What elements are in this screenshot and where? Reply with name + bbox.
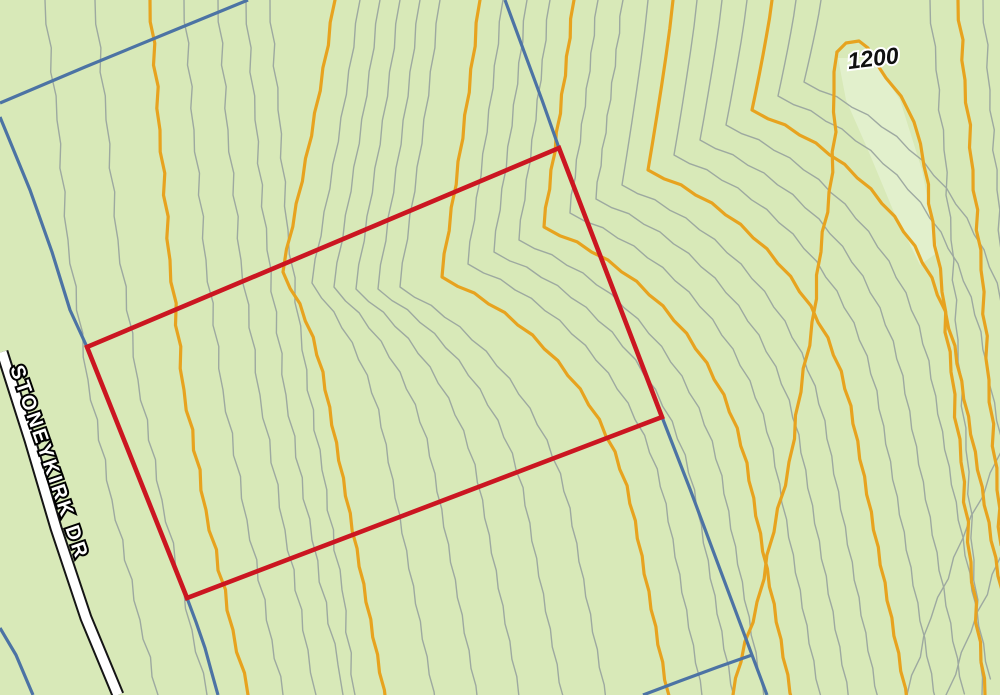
map-viewport[interactable]: STONEYKIRK DR 1200 <box>0 0 1000 695</box>
map-canvas[interactable]: STONEYKIRK DR 1200 <box>0 0 1000 695</box>
